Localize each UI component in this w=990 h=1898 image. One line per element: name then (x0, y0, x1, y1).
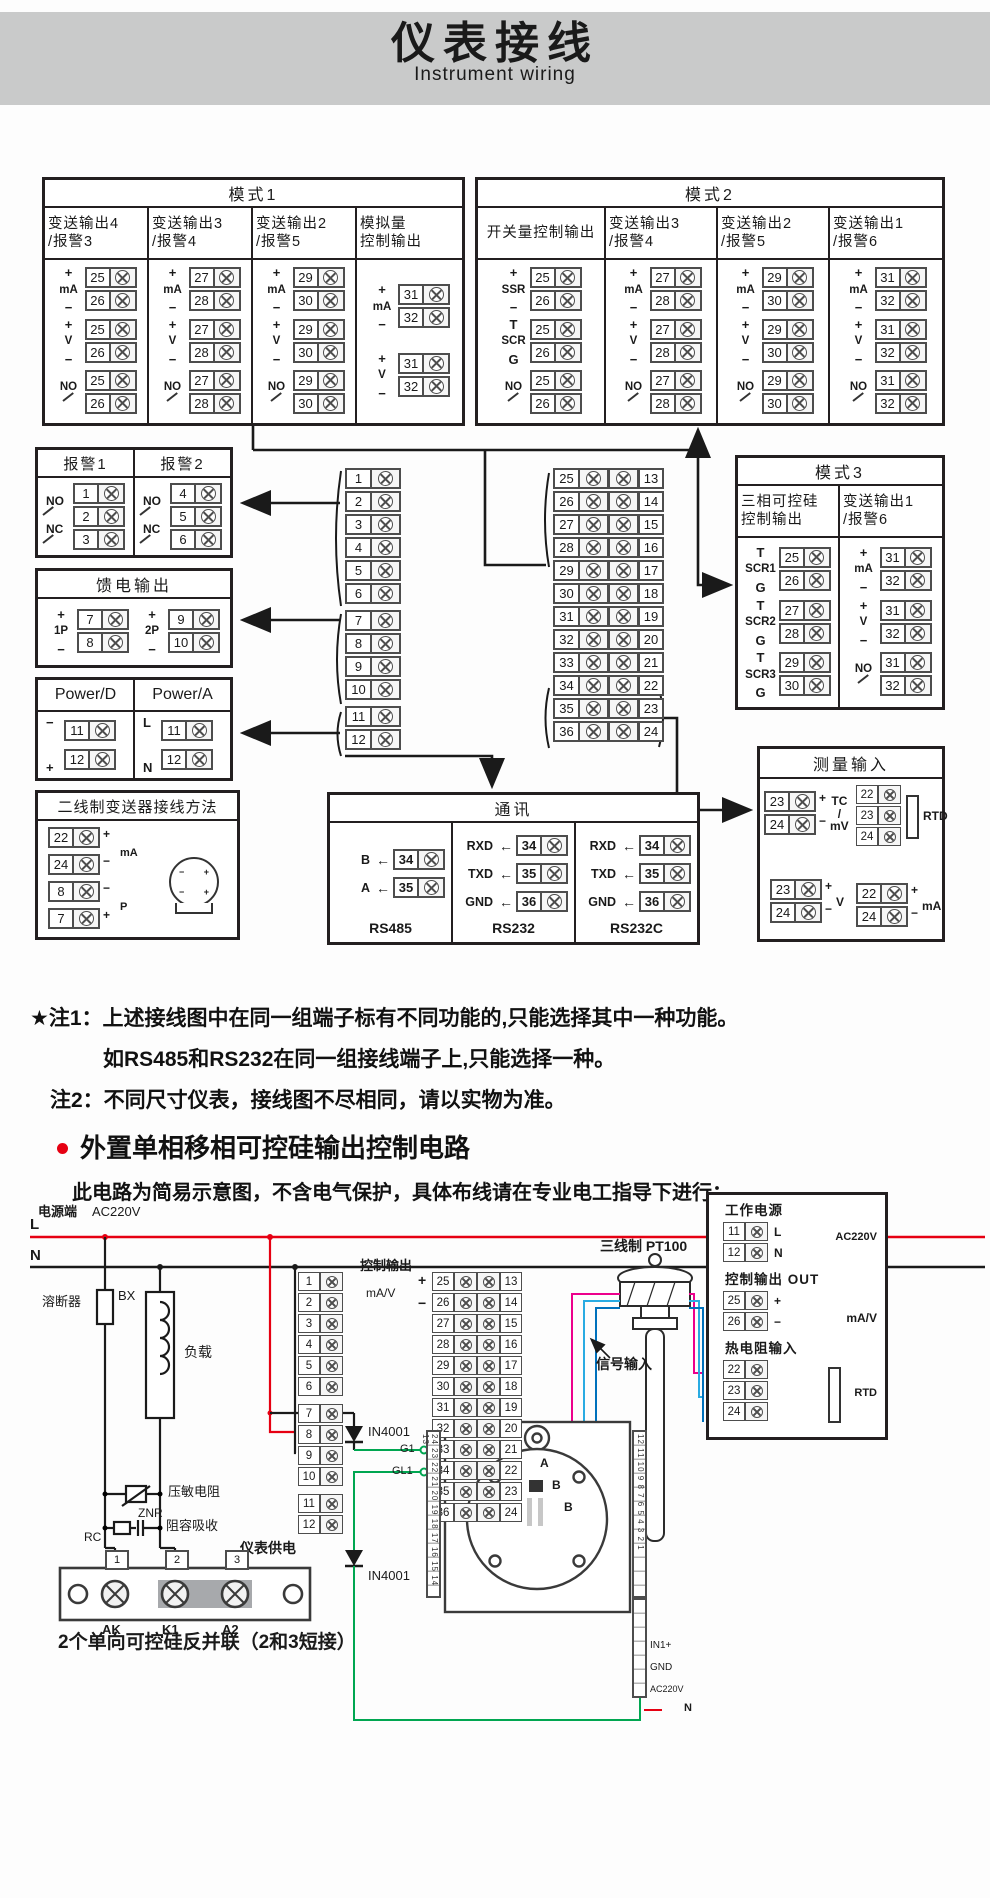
trow: 25 (85, 319, 137, 340)
column-header-line: /报警4 (609, 233, 713, 251)
screw-terminal (320, 1293, 343, 1312)
screw-icon (378, 471, 393, 486)
screw-icon (616, 724, 631, 739)
gname: V (169, 336, 177, 348)
terminal-number: 4 (345, 537, 371, 558)
screw-terminal (477, 1482, 500, 1501)
screw-terminal (477, 1272, 500, 1291)
screw-icon (547, 838, 562, 853)
strow: 10 (345, 679, 401, 700)
terminal-number: 12 (64, 749, 89, 770)
screw-terminal (579, 721, 609, 742)
terminal-group-2P: +2P−910 (139, 609, 220, 655)
terminal-number: 25 (85, 319, 110, 340)
trow: 25 (530, 319, 582, 340)
terminal-number: 20 (639, 629, 664, 650)
legend-masv: mA/V (846, 1311, 877, 1325)
screw-terminal (454, 1293, 477, 1312)
p-note: P (120, 901, 127, 914)
terminal-number: 27 (650, 319, 675, 340)
strow: 3523 (553, 698, 664, 719)
screw-icon (326, 1471, 338, 1483)
trow: 24− (770, 902, 832, 923)
column-header: 变送输出1/报警6 (830, 208, 942, 260)
trow: 29 (762, 267, 814, 288)
gname: NO (855, 664, 872, 676)
module-connector-right: 12 11 10 9 8 7 6 5 4 3 2 1 (632, 1430, 647, 1598)
gname: mA (849, 285, 868, 297)
column-header: 三相可控硅控制输出 (738, 486, 838, 538)
screw-icon (378, 563, 393, 578)
screw-icon (547, 894, 562, 909)
sgn: T (757, 600, 765, 611)
screw-icon (809, 655, 824, 670)
mcol: 变送输出3/报警4+mA−2728+V−2728NO2728 (606, 208, 718, 423)
screw-terminal (320, 1314, 343, 1333)
gstack: +mA−2728+V−2728NO2728 (606, 260, 716, 423)
trow: 22 (856, 785, 901, 804)
trow: 26 (530, 290, 582, 311)
transmitter-icon: −+−+ (169, 857, 219, 907)
trow: 27 (650, 319, 702, 340)
screw-icon (586, 586, 601, 601)
comm-standard-label: RS232C (610, 920, 663, 938)
screw-icon (219, 373, 234, 388)
screw-terminal (371, 583, 401, 604)
label-wb1: B (552, 1478, 561, 1492)
mcol: 模拟量控制输出+mA−3132+V−3132 (357, 208, 462, 423)
screw-icon (809, 573, 824, 588)
label-l: L (30, 1216, 39, 1234)
screw-terminal (675, 370, 702, 391)
power-sig: N (143, 760, 161, 775)
screw-terminal (477, 1293, 500, 1312)
screw-terminal (371, 537, 401, 558)
strow: 10 (298, 1467, 343, 1486)
strow: 2614 (553, 491, 664, 512)
terminal-group-V: +V−2930 (733, 319, 814, 365)
screw-terminal (320, 1404, 343, 1423)
terminal-group-SCR2: TSCR2G2728 (745, 600, 831, 646)
switch-contact-icon (852, 394, 865, 404)
terminal-number: 29 (293, 267, 318, 288)
comm-standard-label: RS485 (369, 920, 412, 938)
screw-terminal (73, 854, 100, 875)
screw-terminal (745, 1402, 768, 1421)
screw-terminal (214, 290, 241, 311)
screw-icon (483, 1297, 495, 1309)
terminal-number: 32 (875, 342, 900, 363)
screw-terminal (423, 353, 450, 374)
terminal-number: 25 (530, 319, 555, 340)
column-header-line: /报警6 (833, 233, 939, 251)
screw-icon (323, 270, 338, 285)
label-ctrl_plus: + (418, 1272, 426, 1289)
sign: − (103, 854, 110, 875)
screw-terminal (418, 877, 445, 898)
gname: NO (737, 382, 754, 394)
screw-terminal (745, 1312, 768, 1331)
gstack: +mA−2930+V−2930NO2930 (253, 260, 355, 423)
power-sig: + (46, 760, 64, 775)
ltit: 热电阻输入 (713, 1334, 881, 1358)
sgn: − (860, 635, 868, 646)
tgl: +mA− (621, 267, 647, 313)
sgn: T (757, 652, 765, 663)
terminal-number: 31 (875, 319, 900, 340)
column-header-line: 变送输出3 (152, 215, 248, 233)
screw-terminal (454, 1272, 477, 1291)
terminal-number: 23 (639, 698, 664, 719)
screw-terminal (477, 1440, 500, 1459)
screw-icon (483, 1444, 495, 1456)
screw-icon (905, 345, 920, 360)
screw-icon (104, 509, 119, 524)
screw-terminal (664, 835, 691, 856)
screw-icon (751, 1406, 763, 1418)
terminal-number: 27 (432, 1314, 454, 1333)
strow: 2816 (432, 1335, 522, 1354)
terminal-number: 26 (85, 342, 110, 363)
arrow-left-icon: ← (619, 838, 639, 854)
screw-terminal (110, 342, 137, 363)
gname: SCR2 (745, 617, 776, 629)
screw-terminal (454, 1419, 477, 1438)
trow: 32 (398, 376, 450, 397)
sign: − (911, 906, 918, 927)
screw-terminal (675, 290, 702, 311)
trow: 3 (73, 529, 125, 550)
column-header-line: 变送输出3 (609, 215, 713, 233)
sgn: + (273, 319, 281, 330)
trow: 23 (856, 806, 901, 825)
trow: 6 (170, 529, 222, 550)
comm-col-RS232: RXD←34TXD←35GND←36RS232 (453, 823, 576, 942)
trow: 26 (530, 342, 582, 363)
trow: 32 (875, 342, 927, 363)
screw-icon (809, 678, 824, 693)
terminal-number: 11 (345, 706, 371, 727)
label-power_label: 电源端 (38, 1204, 77, 1220)
tgl: +V− (621, 319, 647, 365)
sgn: + (169, 267, 177, 278)
gstack: +mA−3132+V−3132NO3132 (840, 538, 942, 707)
screw-terminal (905, 675, 932, 696)
trows: 3132 (880, 547, 932, 593)
screw-icon (104, 532, 119, 547)
terminal-number: 20 (500, 1419, 522, 1438)
screw-terminal (900, 267, 927, 288)
terminal-group-mA: +mA−3132 (846, 267, 927, 313)
terminal-number: 27 (553, 514, 579, 535)
screw-icon (884, 831, 896, 843)
label-rc_label: 阻容吸收 (166, 1518, 218, 1534)
comm-signal: TXD (459, 867, 493, 881)
screw-terminal (454, 1335, 477, 1354)
screw-terminal (609, 652, 639, 673)
screw-terminal (579, 698, 609, 719)
column-header-line: 变送输出4 (48, 215, 144, 233)
mcol: 三相可控硅控制输出TSCR1G2526TSCR2G2728TSCR3G2930 (738, 486, 840, 707)
screw-icon (809, 550, 824, 565)
screw-terminal (745, 1381, 768, 1400)
screw-terminal (320, 1425, 343, 1444)
screw-terminal (98, 483, 125, 504)
sgn: − (169, 354, 177, 365)
gstack: TSCR1G2526TSCR2G2728TSCR3G2930 (738, 538, 838, 707)
sgn: + (630, 267, 638, 278)
screw-icon (460, 1318, 472, 1330)
mcontent: 23+24−TC/mV222324RTD23+24−V22+24−mA (760, 779, 942, 939)
screw-terminal (900, 370, 927, 391)
power-box: Power/D−11+12Power/AL11N12 (35, 677, 233, 781)
screw-icon (586, 494, 601, 509)
screw-terminal (454, 1356, 477, 1375)
screw-terminal (541, 835, 568, 856)
gstack: +mA−2930+V−2930NO2930 (718, 260, 828, 423)
screw-icon (483, 1486, 495, 1498)
trow: 2 (73, 506, 125, 527)
terminal-number: 29 (762, 370, 787, 391)
terminal-group-mA: +mA−3132 (851, 547, 932, 593)
screw-icon (792, 396, 807, 411)
screw-terminal (371, 560, 401, 581)
screw-icon (483, 1318, 495, 1330)
terminal-number: 31 (553, 606, 579, 627)
sgn: − (65, 354, 73, 365)
screw-terminal (745, 1360, 768, 1379)
terminal-number: 24 (723, 1402, 745, 1421)
gstack: +mA−3132+V−3132 (357, 260, 462, 423)
gname: SCR3 (745, 670, 776, 682)
trow: 31 (880, 600, 932, 621)
terminal-number: 28 (189, 342, 214, 363)
arrow-left-icon: ← (373, 852, 393, 868)
main-strip-left: 123456789101112 (345, 468, 401, 752)
screw-terminal (454, 1482, 477, 1501)
trow: 32 (880, 623, 932, 644)
screw-icon (616, 586, 631, 601)
screw-terminal (318, 393, 345, 414)
column-header: 变送输出3/报警4 (606, 208, 716, 260)
screw-terminal (795, 902, 822, 923)
crow: RXD←34 (459, 835, 568, 856)
screw-terminal (371, 468, 401, 489)
gname: V (860, 617, 868, 629)
prow: L11 (143, 720, 230, 741)
screw-icon (378, 517, 393, 532)
screw-icon (751, 1316, 763, 1328)
screw-icon (616, 632, 631, 647)
screw-terminal (905, 623, 932, 644)
screw-icon (792, 322, 807, 337)
screw-icon (219, 322, 234, 337)
tgl: +V− (369, 353, 395, 399)
trow: 25 (779, 547, 831, 568)
trows: 2728 (779, 600, 831, 646)
terminal-number: 31 (432, 1398, 454, 1417)
trows: 2728 (189, 267, 241, 313)
sgn: + (273, 267, 281, 278)
terminal-number: 17 (639, 560, 664, 581)
prow: N12 (143, 749, 230, 770)
sgn: − (273, 302, 281, 313)
terminal-number: 30 (293, 393, 318, 414)
trow: 8− (48, 881, 110, 902)
strow: 7 (345, 610, 401, 631)
wire-supply-N (295, 1267, 296, 1453)
screw-icon (586, 517, 601, 532)
column-header: 变送输出2/报警5 (253, 208, 355, 260)
terminal-number: 24 (48, 854, 73, 875)
crows: RXD←34TXD←35GND←36 (582, 827, 691, 920)
strow: 3220 (553, 629, 664, 650)
screw-icon (586, 701, 601, 716)
trow: 31 (875, 319, 927, 340)
screw-icon (460, 1423, 472, 1435)
twcontent: 22+24−8−7+mAP−+−+ (38, 821, 237, 937)
trow: 29 (293, 319, 345, 340)
trow: 5 (170, 506, 222, 527)
screw-terminal (555, 370, 582, 391)
screw-terminal (320, 1515, 343, 1534)
screw-icon (616, 609, 631, 624)
tgl: +V− (264, 319, 290, 365)
strow: 1 (298, 1272, 343, 1291)
screw-terminal (900, 319, 927, 340)
screw-icon (460, 1360, 472, 1372)
screw-icon (616, 517, 631, 532)
terminal-group-V: +V−3132 (851, 600, 932, 646)
screw-icon (378, 709, 393, 724)
screw-terminal (110, 319, 137, 340)
column-header-line: /报警4 (152, 233, 248, 251)
trow: 28 (650, 393, 702, 414)
screw-terminal (454, 1377, 477, 1396)
label-znr_label: 压敏电阻 (168, 1484, 220, 1500)
terminal-number: 27 (779, 600, 804, 621)
note-2: 注2：不同尺寸仪表，接线图不尽相同，请以实物为准。 (50, 1084, 566, 1114)
terminal-number: 19 (639, 606, 664, 627)
terminal-number: 23 (723, 1381, 745, 1400)
screw-terminal (320, 1356, 343, 1375)
sgn: − (378, 319, 386, 330)
terminal-number: 11 (161, 720, 186, 741)
trows: 2930 (762, 319, 814, 365)
crow: B←34 (336, 849, 445, 870)
screw-icon (616, 471, 631, 486)
label-n: N (30, 1247, 41, 1265)
strow: 3 (298, 1314, 343, 1333)
screw-icon (680, 396, 695, 411)
trows: 23+24− (764, 791, 826, 837)
strow: 11 (298, 1494, 343, 1513)
strow: 6 (345, 583, 401, 604)
tgl: +mA− (264, 267, 290, 313)
mgl: RTD (923, 810, 948, 823)
comm-col-RS485: B←34A←35RS485 (330, 823, 453, 942)
screw-icon (219, 396, 234, 411)
strow: 3018 (432, 1377, 522, 1396)
label-n_b: N (684, 1702, 692, 1715)
screw-terminal (609, 721, 639, 742)
terminal-number: 25 (553, 468, 579, 489)
screw-icon (483, 1360, 495, 1372)
trow: 25 (530, 370, 582, 391)
terminal-number: 29 (553, 560, 579, 581)
terminal-number: 11 (723, 1222, 745, 1241)
gname: V (630, 336, 638, 348)
terminal-number: 21 (639, 652, 664, 673)
screw-terminal (110, 290, 137, 311)
arrow-left-icon: ← (496, 894, 516, 910)
screw-terminal (579, 606, 609, 627)
sgn: − (855, 302, 863, 313)
trow: 30 (293, 393, 345, 414)
screw-icon (586, 724, 601, 739)
screw-terminal (98, 506, 125, 527)
screw-icon (792, 270, 807, 285)
terminal-number: 8 (298, 1425, 320, 1444)
screw-terminal (98, 529, 125, 550)
screw-icon (670, 838, 685, 853)
terminal-number: 28 (189, 290, 214, 311)
terminal-number: 2 (345, 491, 371, 512)
screw-icon (560, 373, 575, 388)
tgl: +V− (851, 600, 877, 646)
sign: − (819, 814, 826, 835)
screw-icon (108, 635, 123, 650)
terminal-number: 28 (553, 537, 579, 558)
cols: B←34A←35RS485RXD←34TXD←35GND←36RS232RXD←… (330, 823, 697, 942)
trow: 28 (189, 342, 241, 363)
screw-terminal (477, 1314, 500, 1333)
label-g1: G1 (400, 1443, 415, 1456)
screw-terminal (371, 491, 401, 512)
terminal-number: 28 (650, 290, 675, 311)
column-header: 变送输出2/报警5 (718, 208, 828, 260)
terminal-number: 8 (345, 633, 371, 654)
page-title: 仪表接线 (0, 20, 990, 68)
screw-icon (801, 882, 816, 897)
column-header: 变送输出4/报警3 (45, 208, 147, 260)
screw-icon (586, 655, 601, 670)
trow: 24− (48, 854, 110, 875)
screw-icon (460, 1444, 472, 1456)
power-col-title: Power/D (38, 680, 133, 712)
screw-terminal (193, 609, 220, 630)
screw-terminal (477, 1356, 500, 1375)
sgn: + (65, 267, 73, 278)
terminal-number: 24 (856, 827, 878, 846)
gname: mA (854, 564, 873, 576)
screw-terminal (454, 1398, 477, 1417)
screw-icon (792, 293, 807, 308)
strow: 3321 (432, 1440, 522, 1459)
screw-terminal (371, 610, 401, 631)
terminal-number: 15 (639, 514, 664, 535)
rtd-resistor-icon (828, 1367, 841, 1423)
trow: 30 (293, 290, 345, 311)
switch-contact-icon (627, 394, 640, 404)
screw-icon (795, 794, 810, 809)
screw-icon (483, 1507, 495, 1519)
tgl: TSCR2G (745, 600, 776, 646)
trow: 31 (875, 267, 927, 288)
trows: 2526 (530, 319, 582, 365)
no-label: NO (143, 494, 161, 508)
pstack: L11N12 (135, 712, 230, 778)
